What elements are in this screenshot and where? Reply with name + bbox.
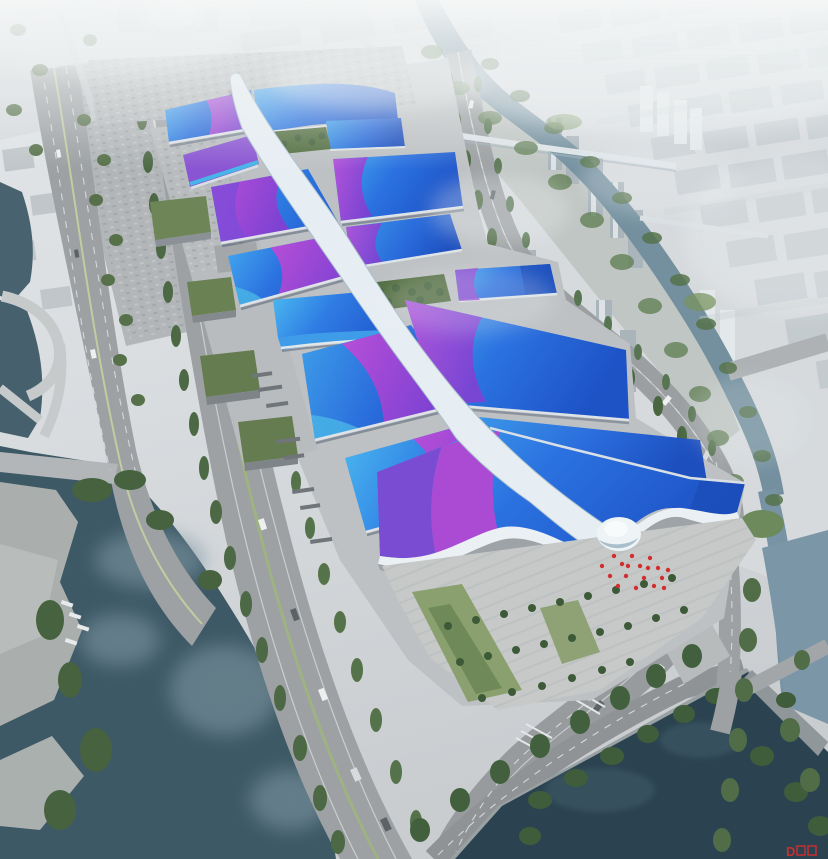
svg-text:D: D	[786, 844, 795, 859]
